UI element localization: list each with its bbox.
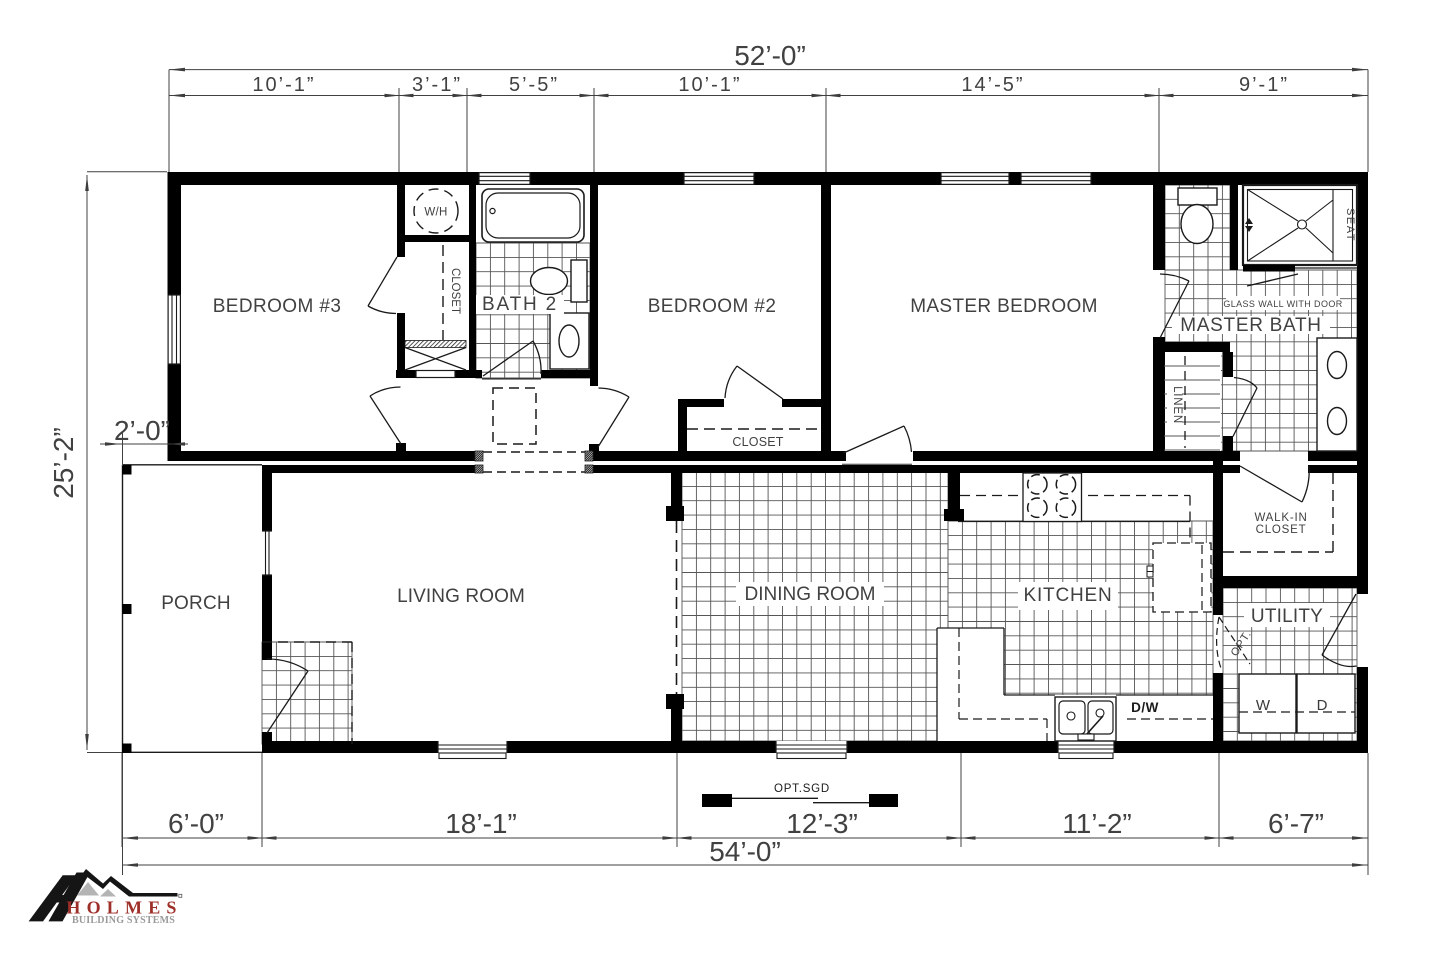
svg-text:12’-3”: 12’-3” (786, 808, 858, 839)
svg-text:BEDROOM #2: BEDROOM #2 (648, 296, 777, 317)
svg-text:9’-1”: 9’-1” (1239, 74, 1289, 96)
svg-text:CLOSET: CLOSET (449, 268, 461, 314)
svg-text:D: D (1317, 697, 1328, 714)
svg-text:KITCHEN: KITCHEN (1024, 585, 1113, 606)
svg-text:52’-0”: 52’-0” (734, 40, 806, 71)
svg-text:BATH 2: BATH 2 (482, 294, 558, 315)
svg-text:18’-1”: 18’-1” (445, 808, 517, 839)
svg-text:BEDROOM #3: BEDROOM #3 (213, 296, 342, 317)
svg-text:WALK-IN: WALK-IN (1254, 512, 1307, 524)
svg-text:GLASS WALL WITH DOOR: GLASS WALL WITH DOOR (1223, 299, 1342, 309)
svg-text:BUILDING SYSTEMS: BUILDING SYSTEMS (72, 915, 175, 926)
svg-text:W: W (1256, 697, 1271, 714)
svg-text:10’-1”: 10’-1” (252, 74, 315, 96)
svg-text:LIVING ROOM: LIVING ROOM (397, 586, 525, 607)
svg-text:PORCH: PORCH (161, 593, 231, 614)
svg-text:25’-2”: 25’-2” (48, 427, 79, 499)
svg-text:CLOSET: CLOSET (732, 435, 783, 449)
svg-text:3’-1”: 3’-1” (412, 74, 462, 96)
svg-text:CLOSET: CLOSET (1256, 524, 1307, 536)
svg-text:6’-0”: 6’-0” (168, 808, 224, 839)
svg-text:14’-5”: 14’-5” (961, 74, 1024, 96)
svg-text:W/H: W/H (424, 207, 447, 219)
svg-text:10’-1”: 10’-1” (678, 74, 741, 96)
svg-text:LINEN: LINEN (1171, 386, 1183, 424)
svg-text:UTILITY: UTILITY (1251, 606, 1323, 627)
svg-text:11’-2”: 11’-2” (1062, 808, 1132, 839)
svg-text:5’-5”: 5’-5” (509, 74, 559, 96)
svg-text:MASTER BEDROOM: MASTER BEDROOM (910, 296, 1098, 317)
svg-text:DINING ROOM: DINING ROOM (745, 584, 876, 605)
svg-text:OPT.SGD: OPT.SGD (774, 783, 830, 795)
svg-text:D/W: D/W (1131, 700, 1159, 715)
svg-text:MASTER BATH: MASTER BATH (1180, 315, 1321, 336)
svg-text:2’-0”: 2’-0” (114, 415, 170, 446)
svg-text:SEAT: SEAT (1344, 208, 1356, 242)
svg-text:54’-0”: 54’-0” (709, 836, 781, 867)
svg-text:6’-7”: 6’-7” (1268, 808, 1324, 839)
